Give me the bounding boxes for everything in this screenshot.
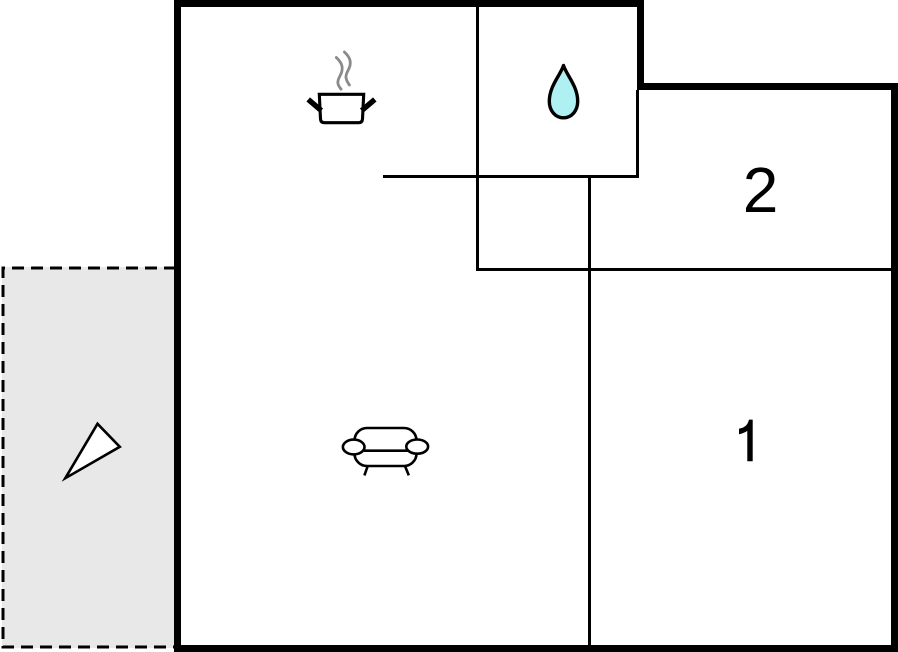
svg-text:2: 2 <box>743 154 779 226</box>
